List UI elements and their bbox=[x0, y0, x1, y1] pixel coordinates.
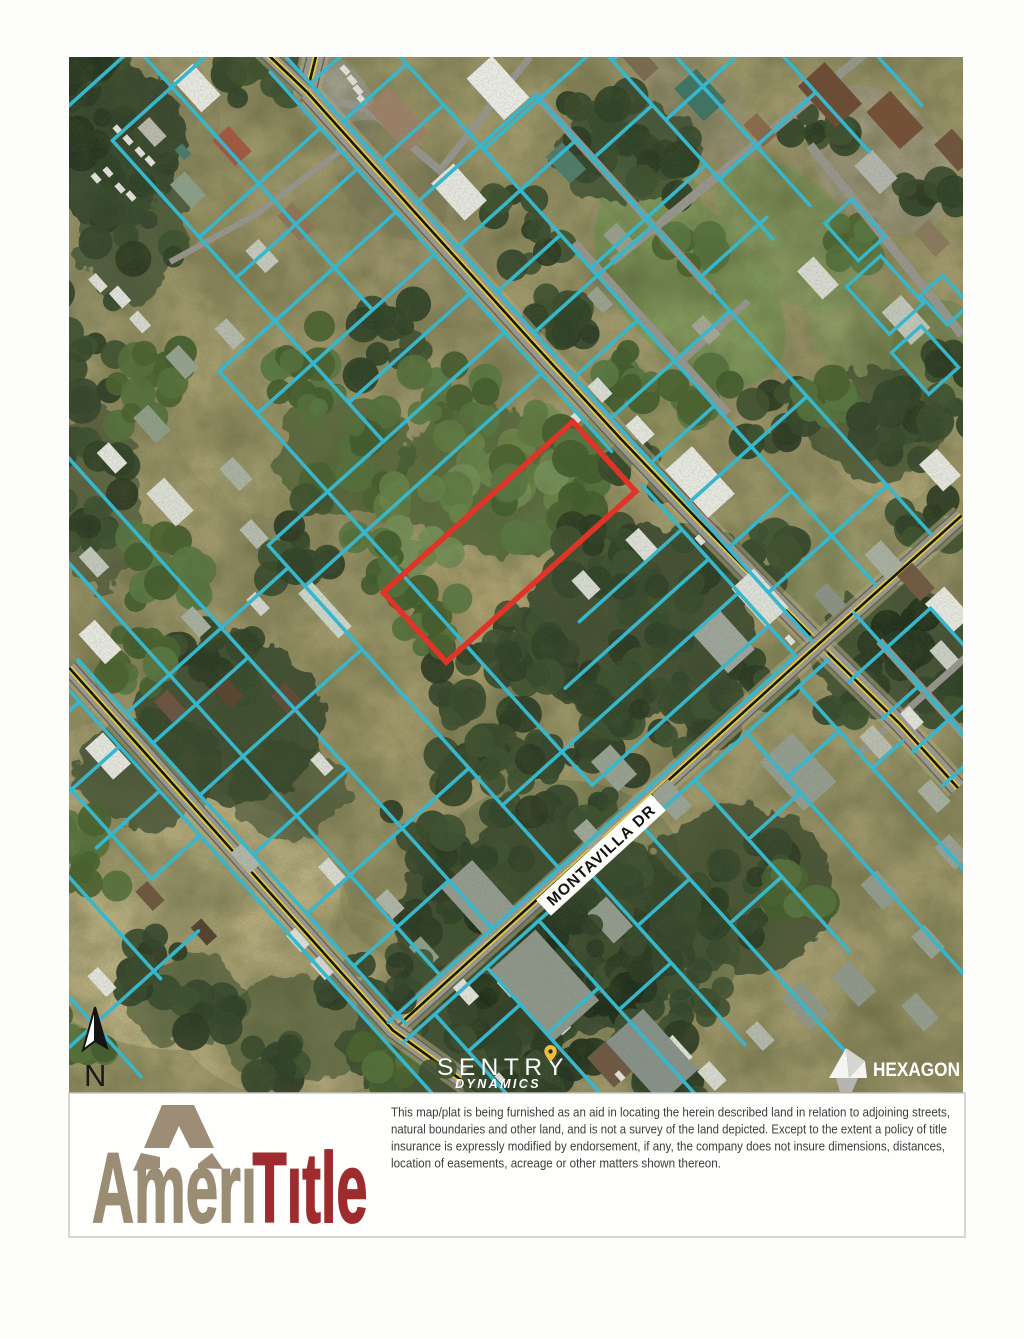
svg-text:insurance is expressly modifie: insurance is expressly modified by endor… bbox=[391, 1139, 945, 1154]
svg-text:Tıtle: Tıtle bbox=[253, 1132, 368, 1243]
svg-text:This map/plat is being furnish: This map/plat is being furnished as an a… bbox=[391, 1105, 950, 1120]
svg-text:N: N bbox=[84, 1058, 106, 1093]
svg-text:HEXAGON: HEXAGON bbox=[873, 1059, 960, 1081]
svg-text:location of easements, acreage: location of easements, acreage or other … bbox=[391, 1156, 721, 1171]
svg-text:DYNAMICS: DYNAMICS bbox=[455, 1077, 541, 1091]
svg-text:Amerı: Amerı bbox=[92, 1132, 257, 1243]
svg-text:natural boundaries and other l: natural boundaries and other land, and i… bbox=[391, 1122, 947, 1137]
